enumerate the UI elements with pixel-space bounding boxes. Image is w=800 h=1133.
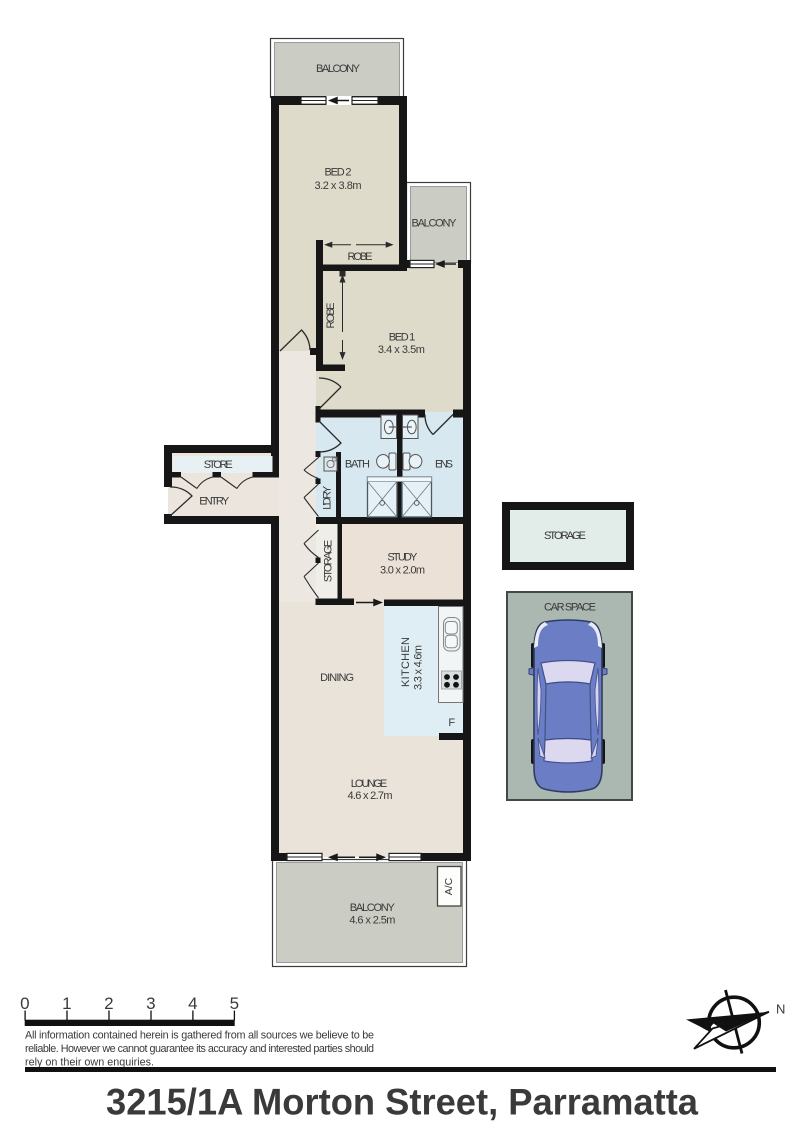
svg-text:4.6 x 2.7m: 4.6 x 2.7m (348, 790, 393, 802)
svg-text:5: 5 (230, 994, 239, 1013)
svg-text:0: 0 (20, 994, 29, 1013)
svg-text:2: 2 (104, 994, 113, 1013)
svg-text:CAR SPACE: CAR SPACE (544, 602, 596, 614)
svg-text:ROBE: ROBE (325, 303, 337, 329)
svg-text:A/C: A/C (443, 877, 455, 895)
svg-text:All information contained here: All information contained herein is gath… (25, 1030, 374, 1042)
svg-text:3.3 x 4.6m: 3.3 x 4.6m (413, 645, 425, 690)
svg-text:N: N (776, 1002, 785, 1017)
svg-text:ENS: ENS (435, 458, 453, 470)
svg-text:STORAGE: STORAGE (323, 540, 335, 583)
svg-text:3: 3 (146, 994, 155, 1013)
svg-text:3.2 x 3.8m: 3.2 x 3.8m (315, 180, 362, 192)
svg-text:STORE: STORE (204, 459, 233, 471)
svg-text:BALCONY: BALCONY (412, 218, 458, 230)
svg-text:3.4 x 3.5m: 3.4 x 3.5m (378, 344, 425, 356)
svg-text:F: F (448, 717, 455, 729)
svg-text:4: 4 (188, 994, 197, 1013)
svg-text:KITCHEN: KITCHEN (400, 637, 412, 687)
svg-text:L'DRY: L'DRY (322, 485, 334, 510)
svg-text:LOUNGE: LOUNGE (351, 778, 388, 790)
svg-text:1: 1 (62, 994, 71, 1013)
svg-text:rely on their own enquiries.: rely on their own enquiries. (25, 1056, 154, 1068)
svg-text:BED 2: BED 2 (325, 167, 352, 179)
svg-text:3.0 x 2.0m: 3.0 x 2.0m (380, 564, 425, 576)
svg-text:DINING: DINING (320, 672, 354, 684)
svg-text:4.6 x 2.5m: 4.6 x 2.5m (349, 915, 395, 927)
svg-text:STUDY: STUDY (387, 551, 418, 563)
svg-text:BALCONY: BALCONY (316, 63, 361, 75)
svg-text:STORAGE: STORAGE (544, 530, 586, 542)
svg-text:BALCONY: BALCONY (350, 902, 396, 914)
svg-text:3215/1A Morton Street, Parrama: 3215/1A Morton Street, Parramatta (106, 1082, 698, 1123)
svg-text:BED 1: BED 1 (389, 331, 416, 343)
svg-text:ENTRY: ENTRY (199, 495, 230, 507)
svg-text:ROBE: ROBE (348, 251, 373, 263)
svg-text:reliable. However we cannot gu: reliable. However we cannot guarantee it… (25, 1043, 374, 1055)
svg-text:BATH: BATH (345, 458, 370, 470)
